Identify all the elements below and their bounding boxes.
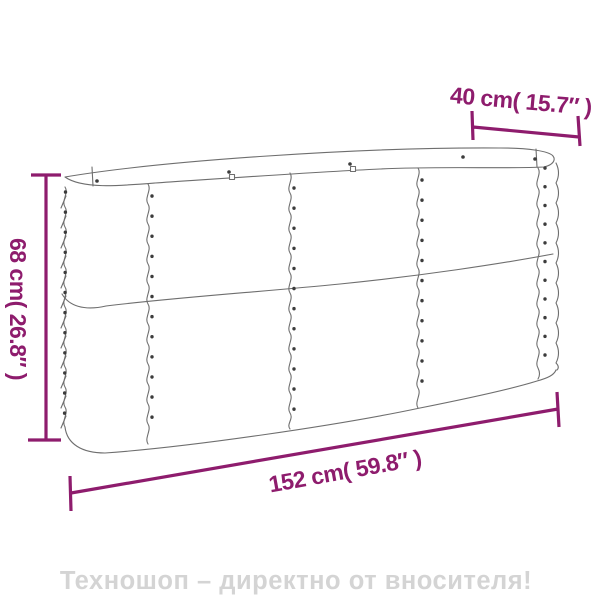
panel-seam-wave [147,184,149,444]
rim-rivet [533,157,537,161]
rim-rivet [348,162,352,166]
bed-bottom-edge [65,370,556,453]
product-dimension-diagram: 40 cm( 15.7″ ) 68 cm( 26.8″ ) 152 cm( 59… [0,0,600,600]
height-dimension-label: 68 cm( 26.8″ ) [5,238,31,380]
bed-rim-outline [65,148,554,186]
bed-mid-seam [62,254,553,308]
panel-seam-wave [417,168,419,408]
rivet-columns [65,168,546,436]
rim-rivet [461,155,465,159]
rim-clip [230,175,235,180]
bed-right-edge-wave [556,163,559,370]
dimension-line-length [70,392,559,511]
watermark: Техношоп – директно от вносителя! [60,567,532,595]
rim-rivet [95,179,99,183]
diagram-canvas: 40 cm( 15.7″ ) 68 cm( 26.8″ ) 152 cm( 59… [0,0,600,600]
bed-left-edge-wave [64,187,66,427]
panel-seam-wave [289,173,291,429]
dimension-labels: 40 cm( 15.7″ ) 68 cm( 26.8″ ) 152 cm( 59… [5,82,593,498]
rim-clip [351,167,356,172]
bed-right-seam-wave [537,168,540,379]
rim-rivet [227,170,231,174]
dimension-line-height [28,175,61,440]
raised-garden-bed-illustration [61,148,559,453]
length-dimension-label: 152 cm( 59.8″ ) [267,445,424,498]
